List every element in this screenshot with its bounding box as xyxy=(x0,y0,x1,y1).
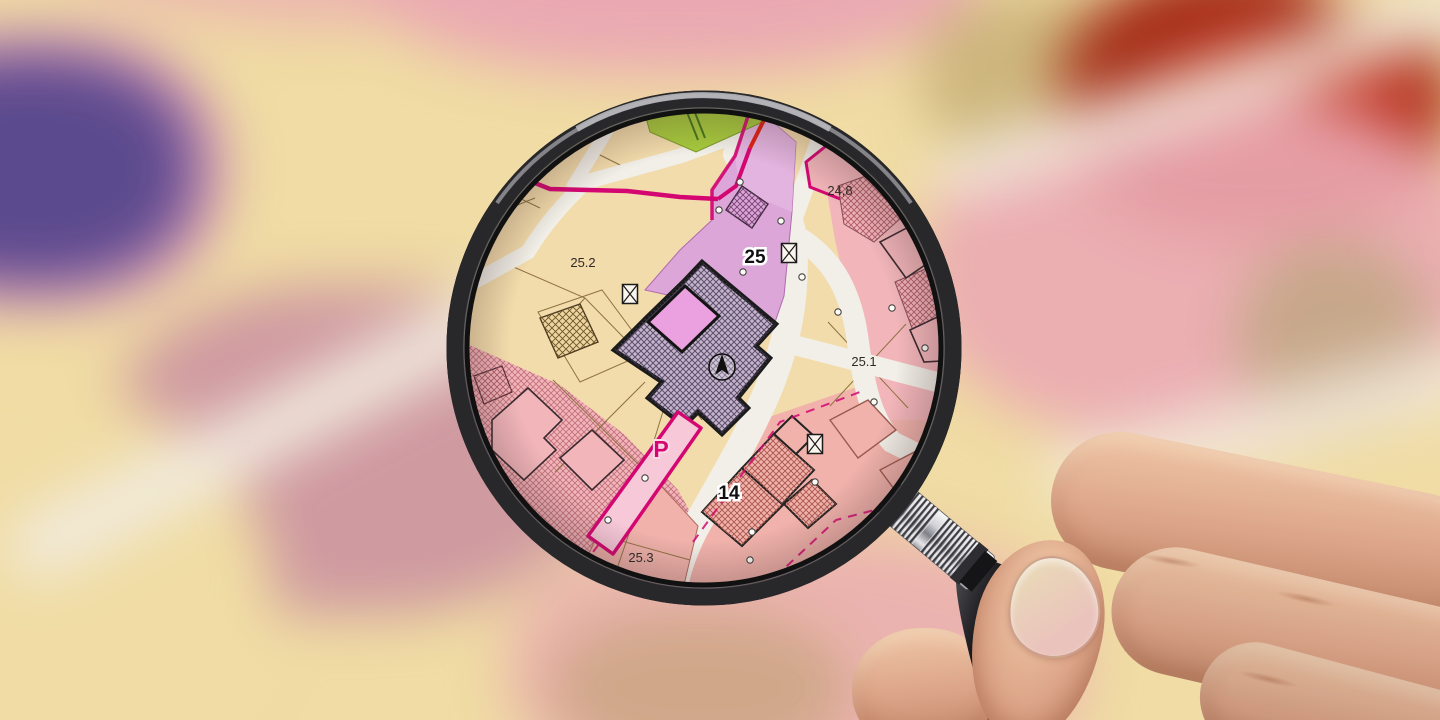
magnifying-glass-lens: 25.2 25 24,8 25.1 14 25.3 P xyxy=(440,90,960,610)
lens-glass-shade xyxy=(468,112,940,584)
photo-scene: 25.2 25 24,8 25.1 14 25.3 P xyxy=(0,0,1440,720)
